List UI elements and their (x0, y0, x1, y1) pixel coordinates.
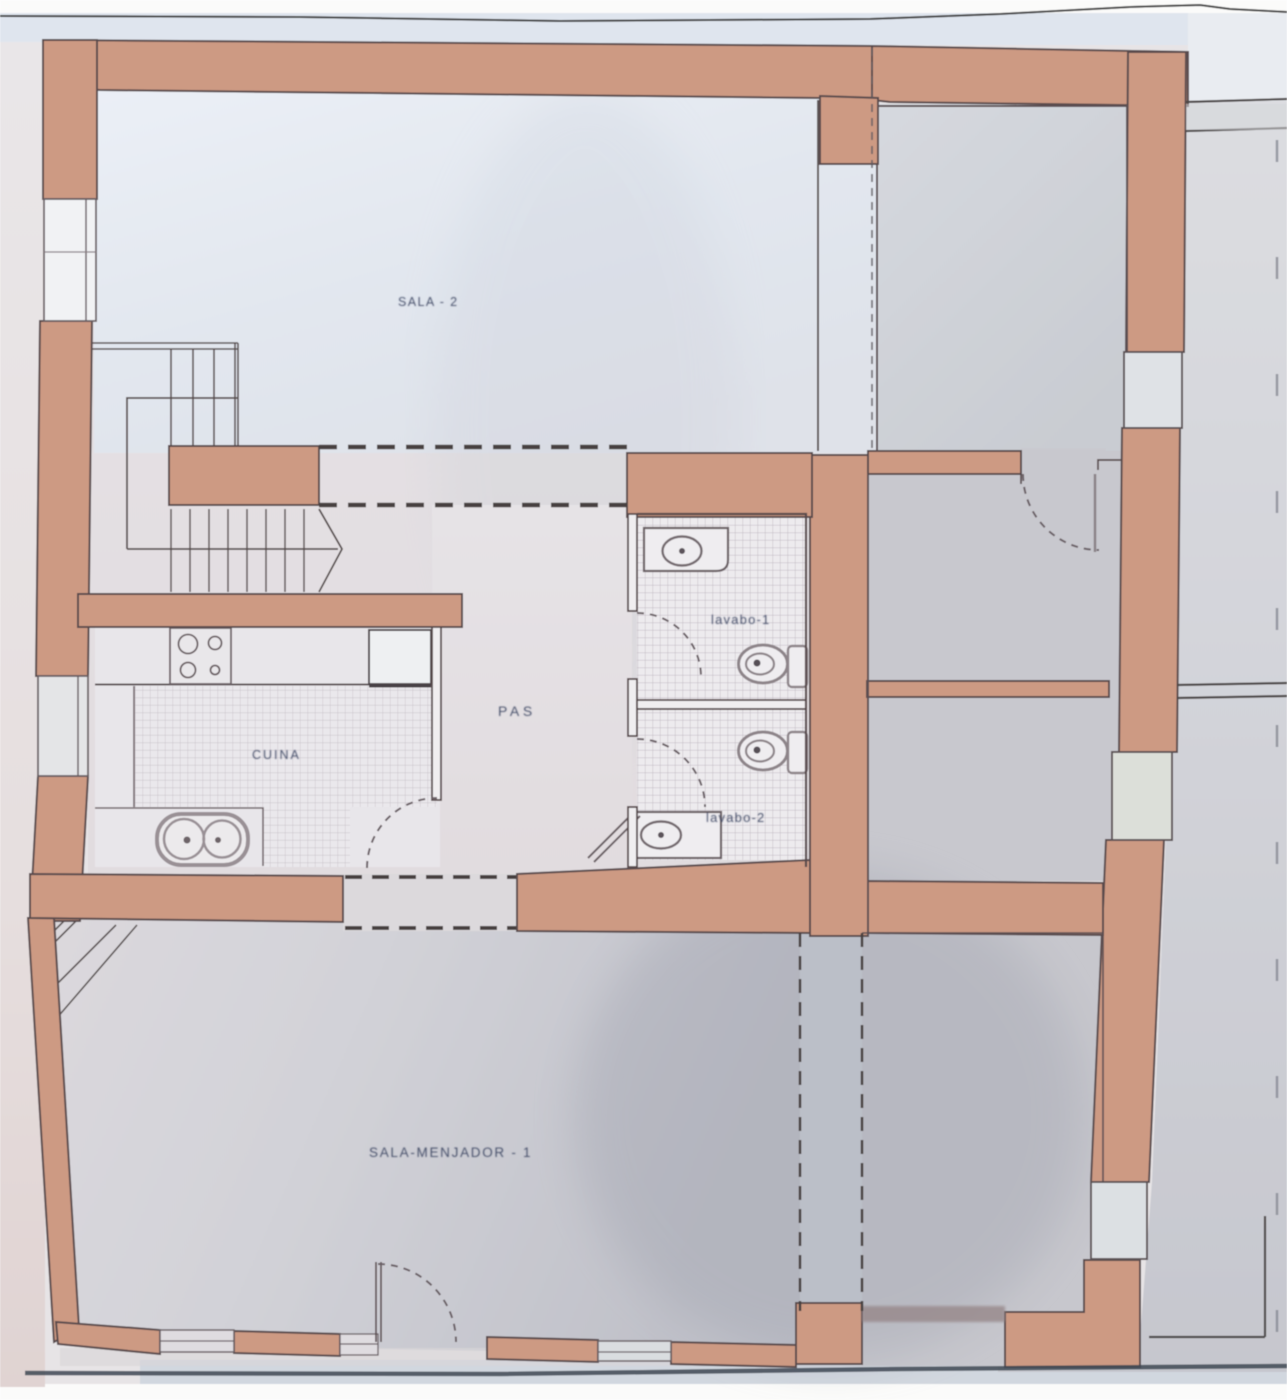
svg-text:CUINA: CUINA (252, 748, 301, 762)
svg-text:SALA-MENJADOR - 1: SALA-MENJADOR - 1 (369, 1145, 532, 1160)
svg-text:lavabo-2: lavabo-2 (706, 810, 765, 825)
svg-text:SALA - 2: SALA - 2 (398, 295, 459, 309)
svg-text:lavabo-1: lavabo-1 (711, 612, 770, 627)
svg-text:PAS: PAS (498, 703, 536, 719)
